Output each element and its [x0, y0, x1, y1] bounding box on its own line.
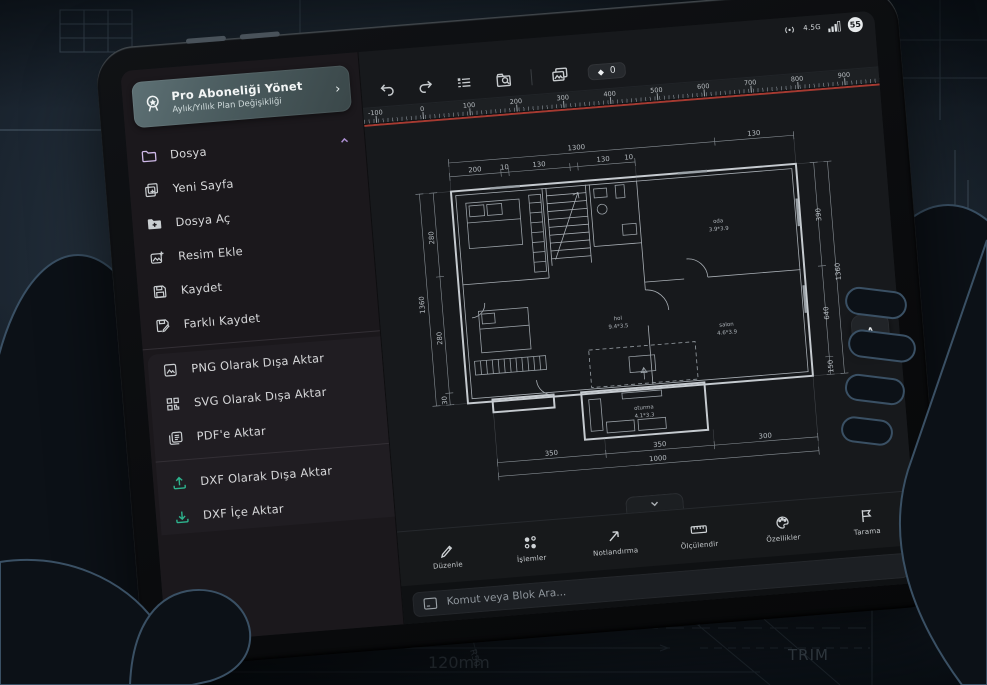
- tool-tarama[interactable]: Tarama: [838, 506, 896, 538]
- menu-item-label: Farklı Kaydet: [183, 311, 261, 331]
- bg-label-trim: TRIM: [787, 646, 829, 664]
- block-search-button[interactable]: [491, 68, 515, 92]
- network-type-label: 4.5G: [803, 23, 821, 32]
- menu-item-label: Yeni Sayfa: [172, 177, 234, 196]
- main-area: 4.5G 55: [358, 11, 919, 625]
- ruler-tick-label: 500: [650, 86, 663, 95]
- ruler-tick-label: 700: [744, 78, 757, 87]
- folder-search-icon: [494, 70, 512, 88]
- dim-label: 280: [435, 331, 444, 345]
- upload-icon: [171, 474, 188, 491]
- png-image-icon: [162, 362, 179, 379]
- tool-duzenle[interactable]: Düzenle: [418, 539, 476, 571]
- redo-button[interactable]: [414, 74, 438, 98]
- selection-count-value: 0: [610, 66, 617, 76]
- dim-label: 640: [822, 306, 831, 320]
- dim-label: 150: [826, 359, 835, 373]
- menu-item-label: PDF'e Aktar: [196, 424, 266, 444]
- dim-label: 350: [544, 449, 558, 458]
- drawing-canvas[interactable]: 1300 130 200 10 130 130 10 1360 280 280 …: [364, 85, 912, 531]
- dim-label: 1360: [417, 296, 426, 314]
- room-label-size: 3.9*3.9: [708, 226, 729, 234]
- layers-list-button[interactable]: [452, 71, 476, 95]
- command-prompt-icon: [422, 596, 438, 610]
- room-label-size: 4.6*3.9: [716, 329, 737, 337]
- tablet-device: Pro Aboneliği Yönet Aylık/Yıllık Plan De…: [94, 0, 945, 669]
- diamond-icon: ◆: [597, 67, 604, 76]
- pro-subscription-card[interactable]: Pro Aboneliği Yönet Aylık/Yıllık Plan De…: [131, 65, 352, 128]
- medal-icon: [142, 93, 164, 115]
- save-icon: [151, 283, 168, 300]
- dim-label: 1300: [567, 143, 585, 152]
- room-label: oda: [712, 218, 723, 225]
- menu-item-label: Kaydet: [180, 280, 222, 297]
- download-icon: [174, 508, 191, 525]
- layers-list-icon: [456, 74, 473, 91]
- menu-item-label: Resim Ekle: [178, 244, 244, 263]
- dim-label: 30: [440, 396, 449, 405]
- selection-count-badge[interactable]: ◆ 0: [587, 62, 626, 81]
- room-label: oturma: [633, 404, 653, 412]
- tool-olculendir[interactable]: Ölçülendir: [670, 519, 728, 551]
- tool-label: Ölçülendir: [681, 540, 719, 551]
- ruler-icon: [689, 521, 708, 538]
- operations-dots-icon: [522, 534, 539, 551]
- dim-label: 1000: [648, 454, 666, 463]
- menu-item-label: DXF Olarak Dışa Aktar: [200, 464, 333, 489]
- floor-plan-drawing[interactable]: 1300 130 200 10 130 130 10 1360 280 280 …: [375, 113, 902, 504]
- chevron-right-icon: ›: [335, 81, 341, 96]
- folder-icon: [140, 148, 157, 165]
- export-group: PNG Olarak Dışa Aktar SVG Olarak Dışa Ak…: [147, 336, 395, 535]
- ruler-tick-label: 400: [603, 90, 616, 99]
- tool-label: Düzenle: [433, 560, 463, 570]
- ruler-tick-label: 300: [556, 93, 569, 102]
- chevron-up-icon[interactable]: [338, 134, 351, 147]
- tool-label: Tarama: [854, 527, 881, 537]
- svg-grid-icon: [164, 395, 181, 412]
- hotspot-icon: [783, 22, 797, 36]
- file-sidebar: Pro Aboneliği Yönet Aylık/Yıllık Plan De…: [120, 52, 404, 643]
- dim-label: 200: [468, 165, 482, 174]
- tool-label: Notlandırma: [593, 546, 639, 558]
- ruler-tick-label: 200: [509, 97, 522, 106]
- ruler-tick-label: 600: [697, 82, 710, 91]
- compare-view-button[interactable]: [548, 63, 572, 87]
- pencil-icon: [438, 541, 455, 558]
- bg-label-128: 128: [103, 400, 122, 411]
- ruler-tick-label: 100: [463, 101, 476, 110]
- dim-label: 350: [652, 440, 666, 449]
- ruler-tick-label: 0: [420, 105, 425, 113]
- floating-button-label: A: [864, 323, 876, 343]
- dim-label: 280: [427, 231, 436, 245]
- chevron-down-icon: [648, 498, 661, 509]
- dim-label: 300: [758, 432, 772, 441]
- menu-item-label: Dosya: [169, 145, 207, 162]
- ruler-tick-label: 900: [837, 71, 850, 80]
- new-page-icon: [143, 181, 160, 198]
- dim-label: 10: [499, 163, 508, 172]
- undo-icon: [377, 80, 395, 98]
- tool-label: Özellikler: [766, 533, 801, 544]
- command-placeholder: Komut veya Blok Ara...: [446, 586, 566, 608]
- redo-icon: [416, 77, 434, 95]
- hatch-flag-icon: [858, 507, 875, 524]
- dim-label: 10: [624, 153, 633, 162]
- folder-plus-icon: [146, 215, 163, 232]
- undo-button[interactable]: [375, 77, 399, 101]
- toolbar-separator: [530, 69, 532, 85]
- save-as-icon: [154, 317, 171, 334]
- image-compare-icon: [550, 65, 569, 84]
- tool-islemler[interactable]: İşlemler: [502, 533, 560, 565]
- tool-notlandirma[interactable]: Notlandırma: [586, 526, 644, 558]
- arrow-annotate-icon: [606, 527, 623, 544]
- menu-item-label: DXF İçe Aktar: [202, 502, 284, 522]
- ruler-tick-label: 800: [790, 75, 803, 84]
- tablet-screen: Pro Aboneliği Yönet Aylık/Yıllık Plan De…: [120, 11, 920, 644]
- image-plus-icon: [149, 249, 166, 266]
- tool-ozellikler[interactable]: Özellikler: [754, 512, 812, 544]
- dim-label: 130: [596, 155, 610, 164]
- signal-bars-icon: [827, 20, 841, 32]
- room-label: salon: [719, 322, 734, 329]
- dim-label: 130: [532, 160, 546, 169]
- room-label-size: 9.4*3.5: [608, 323, 628, 331]
- file-menu: Dosya Yeni Sayfa: [125, 118, 394, 536]
- battery-indicator: 55: [847, 16, 863, 32]
- dim-label: 130: [746, 129, 760, 138]
- ruler-tick-label: -100: [368, 108, 383, 117]
- menu-item-label: SVG Olarak Dışa Aktar: [193, 385, 327, 410]
- palette-icon: [774, 514, 791, 531]
- text-tool-floating-button[interactable]: A: [850, 313, 891, 354]
- menu-item-label: PNG Olarak Dışa Aktar: [191, 351, 325, 376]
- room-label: hol: [613, 316, 622, 323]
- dim-label: 390: [814, 208, 823, 222]
- pdf-pages-icon: [167, 429, 184, 446]
- dim-label: 1360: [833, 262, 842, 280]
- menu-item-label: Dosya Aç: [175, 211, 231, 229]
- tool-label: İşlemler: [517, 554, 547, 564]
